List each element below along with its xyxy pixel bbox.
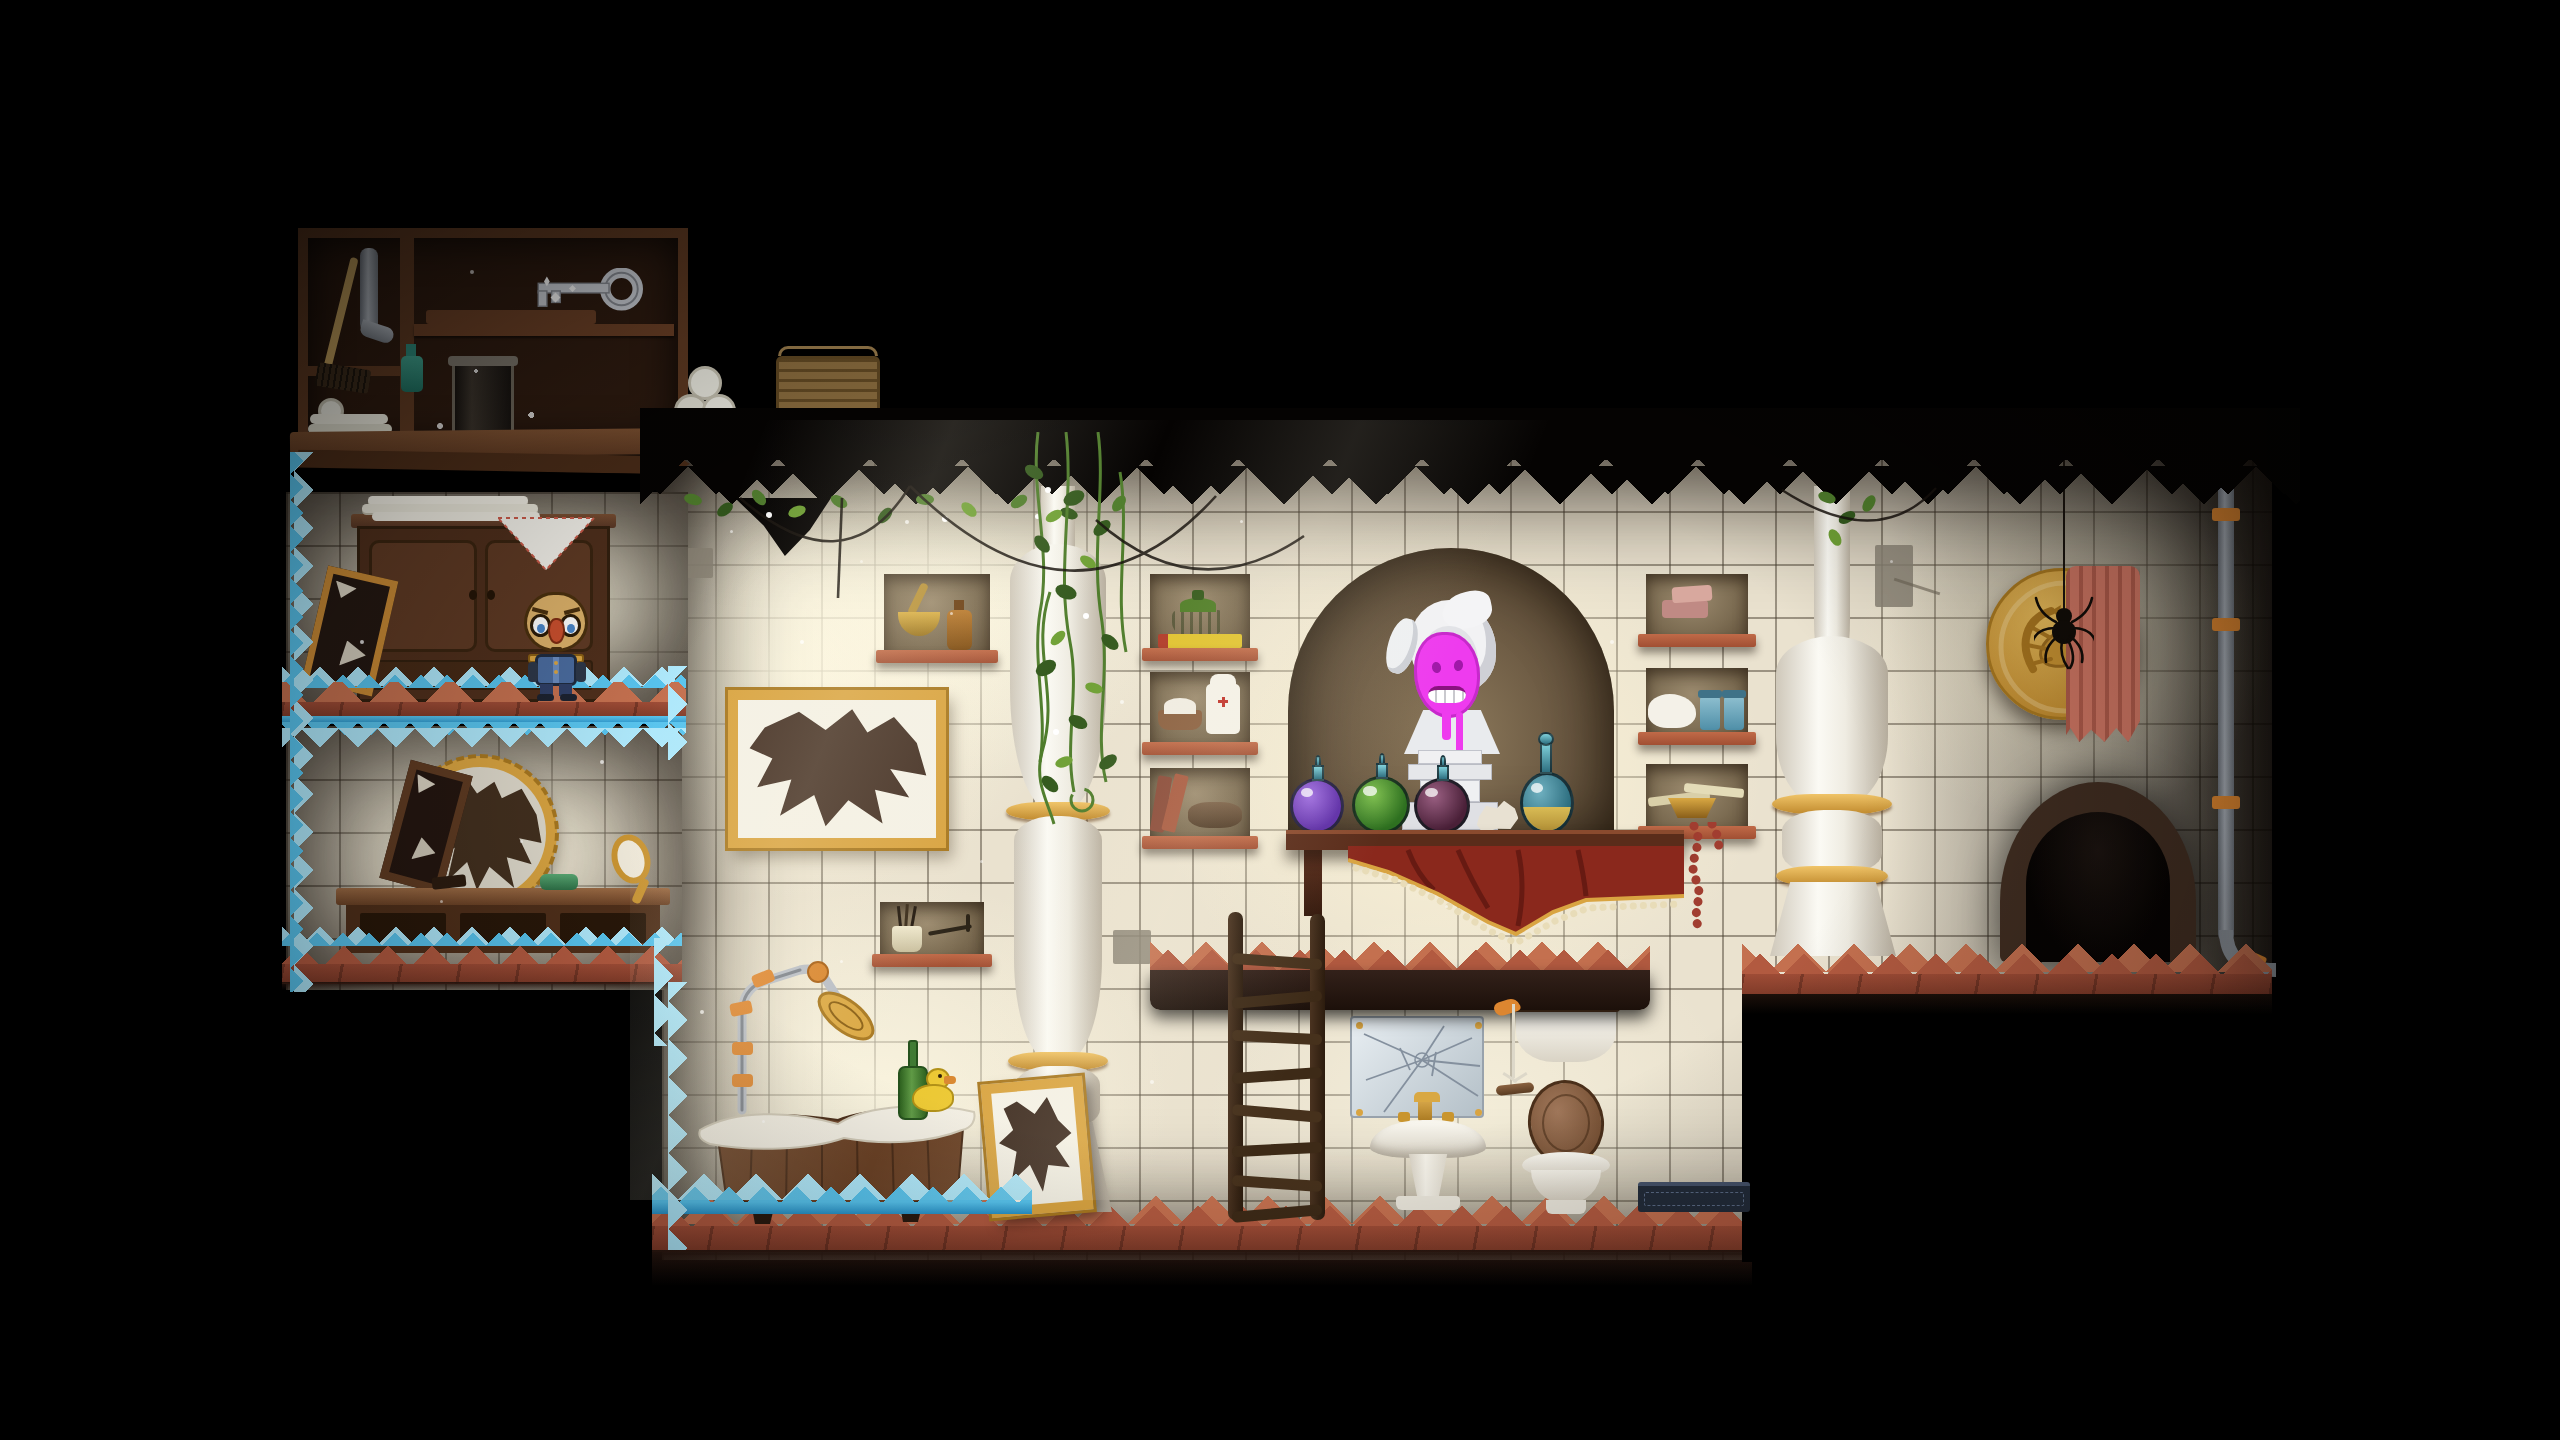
column-right	[1768, 486, 1898, 956]
paint-grin	[1428, 686, 1466, 703]
pink-paint	[1414, 632, 1480, 718]
ice-edge	[668, 666, 690, 760]
lower-room-floor	[282, 924, 682, 990]
character-shoe	[537, 694, 554, 701]
pull-cord[interactable]	[1492, 998, 1540, 1102]
cobweb-strands	[1778, 474, 1978, 554]
character-nose	[548, 618, 565, 644]
broom	[321, 257, 358, 377]
key[interactable]	[530, 268, 646, 312]
ice-wall	[668, 982, 690, 1250]
ice-wall	[290, 452, 306, 992]
pedestal-sink	[1370, 1096, 1486, 1214]
right-room-black-below	[1742, 1002, 2272, 1262]
lace-doily	[496, 516, 596, 572]
green-soap	[540, 874, 578, 890]
niche-books	[1150, 768, 1250, 842]
gold-bowl	[1668, 798, 1716, 818]
niche-first-aid	[1150, 672, 1250, 748]
character-mouth	[551, 647, 562, 650]
blue-jar	[1724, 696, 1744, 730]
broken-wall-frame	[728, 690, 946, 848]
white-towel	[1648, 694, 1696, 728]
character-shoe	[560, 694, 577, 701]
oval-box	[1188, 802, 1242, 828]
red-curtain	[1348, 846, 1684, 966]
cobweb-strands	[656, 440, 1356, 680]
stained-tile	[1113, 930, 1151, 964]
cup	[892, 926, 922, 952]
potion-gold[interactable]	[1520, 772, 1574, 834]
blue-jar	[1700, 696, 1720, 730]
character-arm	[576, 662, 586, 682]
right-floor	[1742, 944, 2272, 1014]
ice-platform	[282, 664, 686, 756]
character-arm	[528, 662, 538, 682]
floor-crystals	[652, 1168, 1032, 1228]
ladder[interactable]	[1226, 912, 1328, 1226]
game-viewport	[0, 0, 2560, 1440]
potion-maroon[interactable]	[1414, 778, 1470, 834]
player-character[interactable]	[520, 592, 594, 700]
potion-purple[interactable]	[1290, 778, 1344, 834]
cord-handle[interactable]	[1496, 1082, 1535, 1096]
potion-green[interactable]	[1352, 776, 1410, 834]
rubber-duck[interactable]	[912, 1068, 960, 1114]
doormat	[1638, 1182, 1750, 1212]
supply-cabinet	[298, 228, 688, 454]
